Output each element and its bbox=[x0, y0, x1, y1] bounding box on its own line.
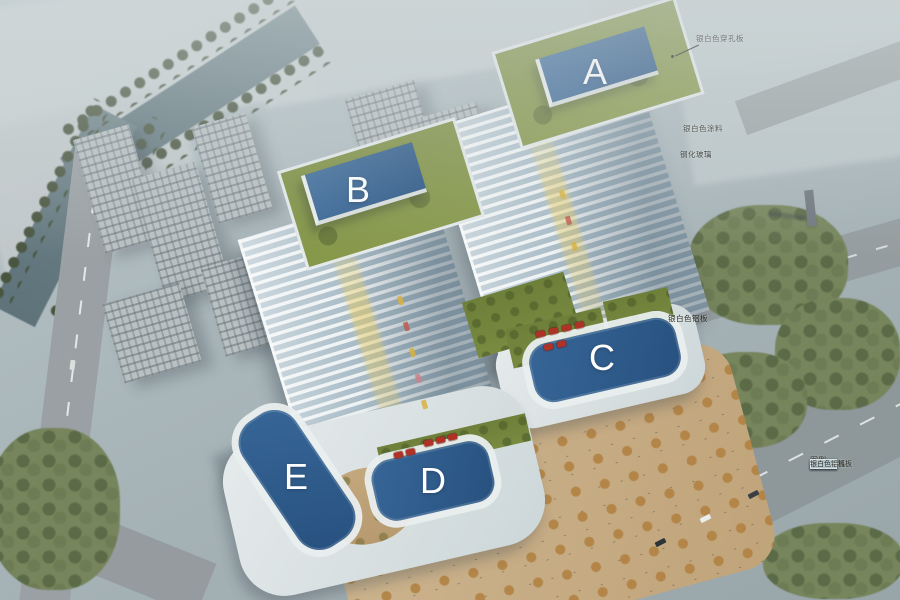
legend-label: 银白色铝板 bbox=[810, 459, 845, 469]
residential-building bbox=[102, 283, 202, 384]
tree-cluster bbox=[763, 523, 900, 599]
building-label-d: D bbox=[420, 463, 446, 499]
material-callout: 银白色铝板 bbox=[668, 315, 708, 323]
tree-cluster bbox=[0, 428, 120, 590]
building-label-c: C bbox=[589, 340, 615, 376]
building-label-e: E bbox=[284, 459, 308, 495]
fog-overlay bbox=[0, 0, 900, 260]
architectural-rendering: A B C D E 银白色穿孔板 银白色涂料 钢化玻璃 银白色铝板 图例: 银白… bbox=[0, 0, 900, 600]
